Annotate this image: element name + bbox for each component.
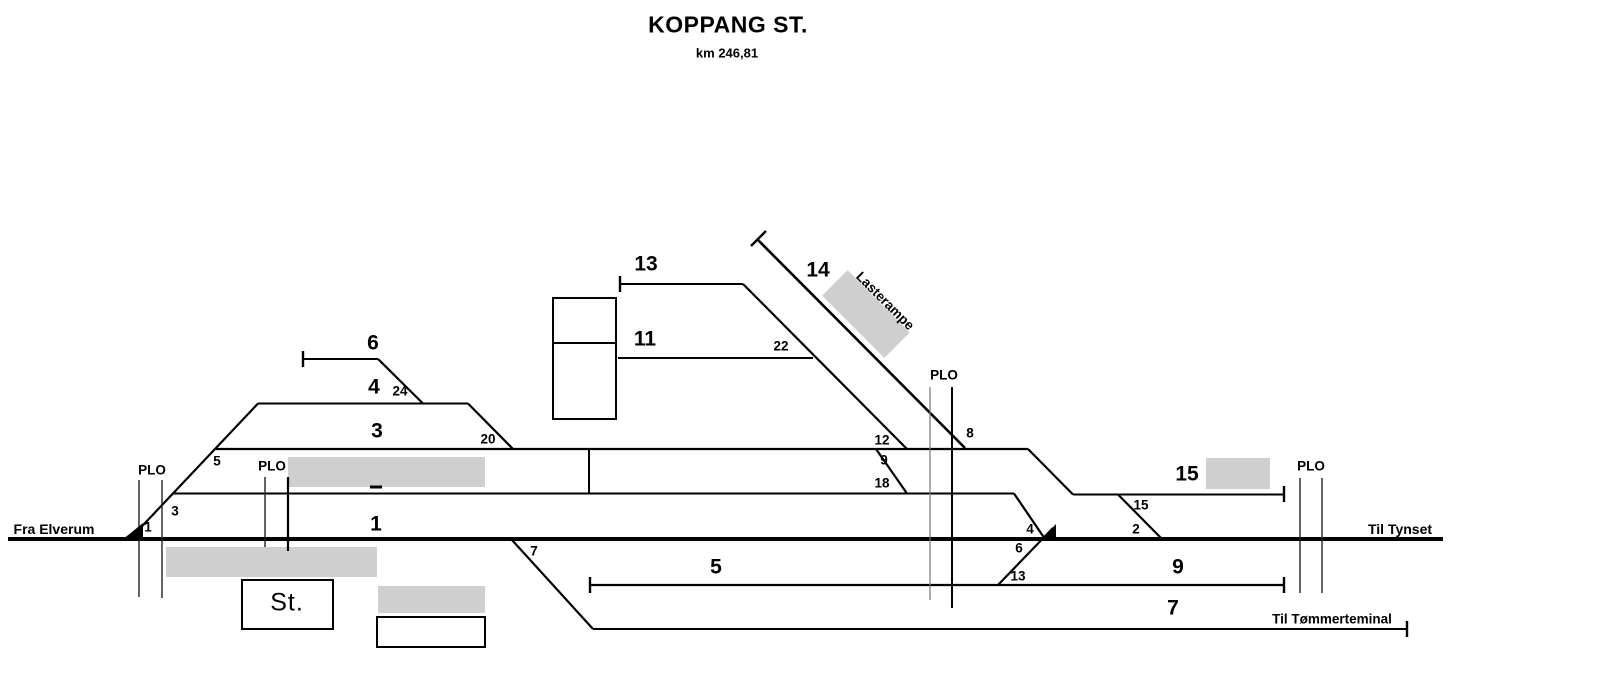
track13-label: 13 (634, 254, 657, 275)
station-building-label: St. (270, 591, 304, 616)
endpoint-east-label: Til Tynset (1368, 522, 1432, 536)
station-platform (166, 547, 377, 577)
track-plan-svg (0, 0, 1600, 679)
switch-13-label: 13 (1010, 569, 1025, 583)
switch-5-label: 5 (213, 454, 221, 468)
building-box (553, 298, 616, 419)
plo-station-label: PLO (258, 459, 286, 473)
switch-15-label: 15 (1133, 498, 1148, 512)
white-building-box (377, 617, 485, 647)
switch-2-label: 2 (1132, 522, 1140, 536)
switch-18-label: 18 (874, 476, 889, 490)
switch-6-label: 6 (1015, 541, 1023, 555)
switch-24-label: 24 (392, 384, 407, 398)
page-title: KOPPANG ST. (648, 14, 808, 37)
plo-east-label: PLO (1297, 459, 1325, 473)
track9-label: 9 (1172, 557, 1184, 578)
switch-22-label: 22 (773, 339, 788, 353)
km-position-label: km 246,81 (696, 47, 758, 60)
track1-label: 1 (370, 514, 382, 535)
platform-between-track3-track2 (288, 457, 485, 487)
switch-9-label: 9 (880, 453, 888, 467)
track15-label: 15 (1175, 464, 1198, 485)
switch-8-label: 8 (966, 426, 974, 440)
track3-track15-jog-diagonal (1028, 449, 1073, 495)
track7-label: 7 (1167, 598, 1179, 619)
track-diagram-canvas: KOPPANG ST. km 246,81 Fra Elverum Til Ty… (0, 0, 1600, 679)
track6-label: 6 (367, 333, 379, 354)
track15-ramp-block (1206, 458, 1270, 489)
endpoint-branch-label: Til Tømmerteminal (1272, 612, 1392, 626)
switch-4-label: 4 (1026, 522, 1034, 536)
track4-label: 4 (368, 377, 380, 398)
plo-west-label: PLO (138, 463, 166, 477)
track14-buffer-tick (751, 231, 766, 246)
west-entry-triangle (122, 523, 143, 540)
switch-1-label: 1 (144, 520, 152, 534)
switch-20-label: 20 (480, 432, 495, 446)
track5-label: 5 (710, 557, 722, 578)
gray-building-block (378, 586, 485, 613)
track14-label: 14 (806, 260, 829, 281)
track3-label: 3 (371, 421, 383, 442)
track2-label-partial (370, 486, 382, 489)
plo-middle-label: PLO (930, 368, 958, 382)
track7-diagonal (512, 540, 593, 629)
switch-3-label: 3 (171, 504, 179, 518)
endpoint-west-label: Fra Elverum (14, 522, 95, 536)
track11-label: 11 (634, 329, 656, 350)
switch-7-label: 7 (530, 544, 538, 558)
switch-12-label: 12 (874, 433, 889, 447)
